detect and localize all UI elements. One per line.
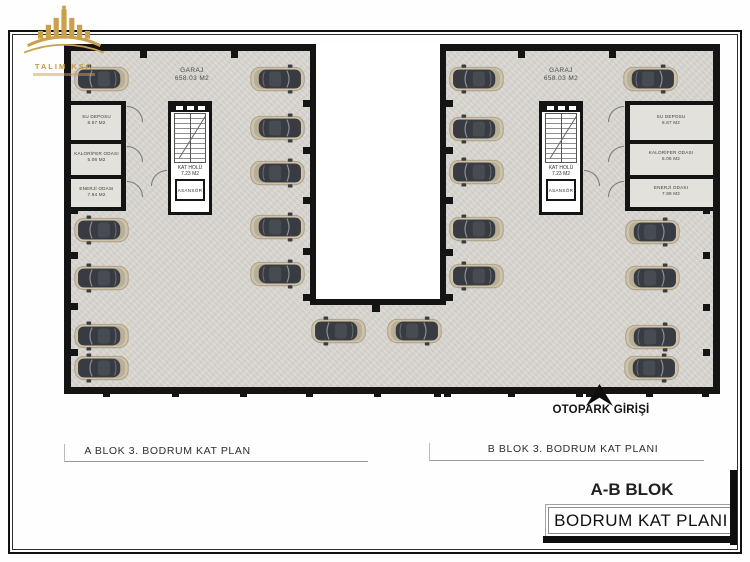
parking-divider [518,51,525,58]
car [448,114,505,144]
car [310,316,367,346]
room-label: KALORİFER ODASI5.06 M2 [629,150,713,161]
caption-b: B BLOK 3. BODRUM KAT PLANI [478,443,668,455]
parking-divider [646,390,653,397]
parking-divider [240,390,247,397]
car [448,64,505,94]
parking-divider [372,303,380,312]
parking-divider [71,207,78,214]
parking-divider [703,207,710,214]
room-label: KALORİFER ODASI5.06 M2 [71,151,122,162]
parking-divider [446,294,453,301]
car [448,157,505,187]
parking-divider [71,252,78,259]
room-label: SU DEPOSU8.67 M2 [629,114,713,125]
wall [64,175,126,179]
entrance-label: OTOPARK GİRİŞİ [540,404,662,416]
parking-divider [446,100,453,107]
parking-divider [703,304,710,311]
car [73,263,130,293]
parking-divider [586,390,593,397]
wall [440,44,720,51]
car [386,316,443,346]
car [249,212,306,242]
car [624,322,681,352]
title-block-box-inner: BODRUM KAT PLANI [548,507,734,534]
car [448,214,505,244]
title-block-name: A-B BLOK [546,480,718,500]
parking-divider [609,51,616,58]
wall [64,387,720,394]
title-block-border-vertical [730,470,737,545]
vent-shaft [542,104,580,112]
car [623,353,680,383]
parking-divider [446,249,453,256]
car [624,263,681,293]
parking-divider [303,197,310,204]
hall-label: KAT HOLÜ 7.23 M2 [542,165,580,177]
garage-label-a: GARAJ 658.03 M2 [147,67,237,82]
car [249,113,306,143]
stairs [174,113,206,163]
parking-divider [702,390,709,397]
title-block-box: BODRUM KAT PLANI [545,504,737,537]
room-label: SU DEPOSU8.67 M2 [71,114,122,125]
wall [625,175,720,179]
caption-b-underline [430,460,704,461]
parking-divider [303,100,310,107]
car [73,321,130,351]
parking-divider [231,51,238,58]
title-block-title: BODRUM KAT PLANI [554,511,728,531]
room-label: ENERJİ ODASI7.99 M2 [629,185,713,196]
stairs [545,113,577,163]
parking-divider [703,349,710,356]
company-logo: TALIM KSA [20,4,108,76]
elevator: ASANSÖR [546,179,576,201]
car [73,215,130,245]
courtyard-notch [312,44,444,302]
room-label: ENERJİ ODASI7.94 M2 [71,186,122,197]
elevator: ASANSÖR [175,179,205,201]
car [624,217,681,247]
stair-core-a: KAT HOLÜ 7.23 M2 ASANSÖR [168,101,212,215]
wall [64,140,126,144]
car [249,259,306,289]
parking-divider [446,197,453,204]
wall [625,140,720,144]
caption-a: A BLOK 3. BODRUM KAT PLAN [80,445,255,457]
garage-label-b: GARAJ 658.03 M2 [516,67,606,82]
wall [64,101,126,105]
logo-title: TALIM KSA [20,62,108,71]
wall [440,44,446,305]
parking-divider [444,390,451,397]
car [622,64,679,94]
parking-divider [446,147,453,154]
wall [713,44,720,394]
stair-core-b: KAT HOLÜ 7.23 M2 ASANSÖR [539,101,583,215]
car [249,158,306,188]
parking-divider [434,390,441,397]
floor-plan: SU DEPOSU8.67 M2 KALORİFER ODASI5.06 M2 … [0,0,750,562]
logo-building-icon [20,4,108,56]
car [73,353,130,383]
parking-divider [103,390,110,397]
parking-divider [303,147,310,154]
wall [310,44,316,305]
parking-divider [374,390,381,397]
drawing-sheet: TALIM KSA SU DEPOSU8.67 M2 KALORİFER ODA… [0,0,750,562]
caption-a-tick [64,444,65,462]
parking-divider [508,390,515,397]
parking-divider [306,390,313,397]
caption-b-tick [429,443,430,461]
vent-shaft [171,104,209,112]
parking-divider [303,248,310,255]
wall [64,44,71,394]
logo-tagline-bar [33,73,95,76]
parking-divider [303,294,310,301]
hall-label: KAT HOLÜ 7.23 M2 [171,165,209,177]
title-block-border-horizontal [543,536,737,543]
parking-divider [576,390,583,397]
parking-divider [172,390,179,397]
car [249,64,306,94]
parking-divider [140,51,147,58]
parking-divider [703,252,710,259]
car [448,261,505,291]
caption-a-underline [65,461,368,462]
parking-divider [71,303,78,310]
wall [625,101,720,105]
